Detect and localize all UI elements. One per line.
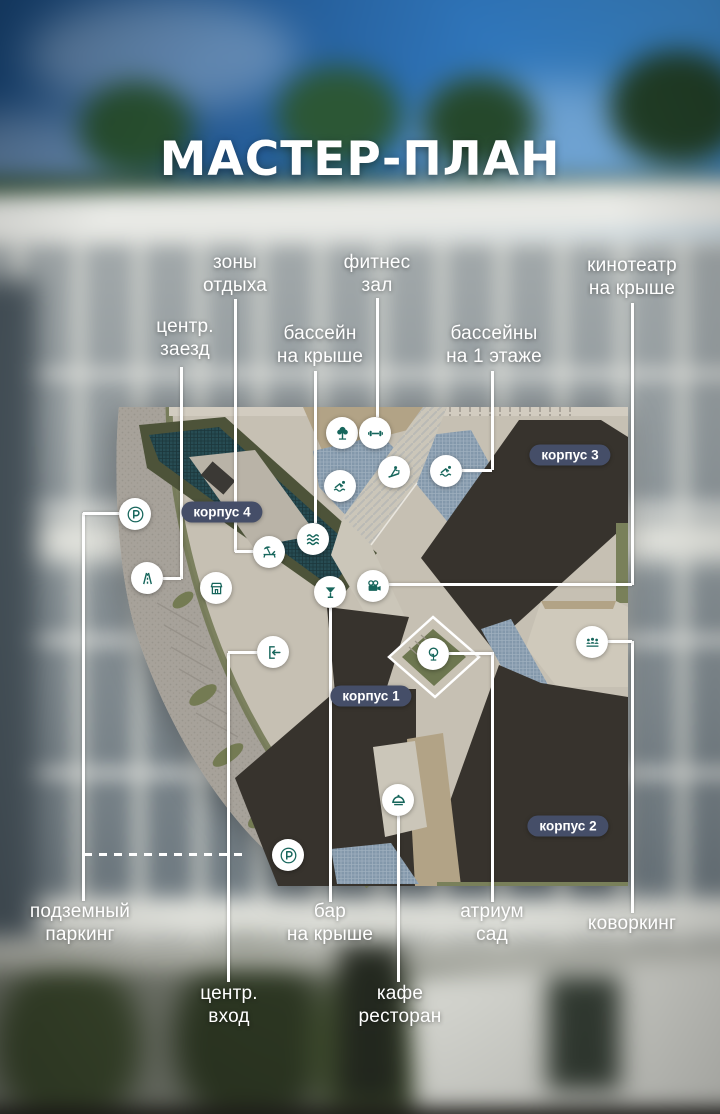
callout-line-entrance xyxy=(228,651,257,654)
shop-icon xyxy=(200,572,232,604)
callout-line-entrance xyxy=(227,653,230,982)
label-coworking: коворкинг xyxy=(588,912,676,935)
badge-korpus-3: корпус 3 xyxy=(529,445,610,466)
callout-line-parking xyxy=(82,513,85,901)
parking-icon xyxy=(272,839,304,871)
cinema-camera-icon xyxy=(357,570,389,602)
label-roofpool: бассейн на крыше xyxy=(277,322,363,368)
treadmill-icon xyxy=(378,456,410,488)
callout-line-cafe xyxy=(397,816,400,982)
lounge-icon xyxy=(253,536,285,568)
callout-line-atrium xyxy=(449,652,492,655)
callout-line-atrium xyxy=(491,652,494,902)
callout-line-bar xyxy=(329,608,332,902)
label-fitness: фитнес зал xyxy=(344,251,411,297)
underground-parking-dashed-line xyxy=(84,853,249,856)
callout-line-zones xyxy=(235,550,253,553)
callout-line-fitness xyxy=(376,298,379,417)
label-roof-bar: бар на крыше xyxy=(287,900,373,946)
page-title: МАСТЕР-ПЛАН xyxy=(0,132,720,187)
label-cafe-restaurant: кафе ресторан xyxy=(359,982,442,1028)
dumbbell-icon xyxy=(359,417,391,449)
badge-korpus-4: корпус 4 xyxy=(181,502,262,523)
cocktail-icon xyxy=(314,576,346,608)
callout-line-coworking xyxy=(608,640,632,643)
label-floorpools: бассейны на 1 этаже xyxy=(446,322,542,368)
badge-korpus-1: корпус 1 xyxy=(330,686,411,707)
atrium-tree-icon xyxy=(417,638,449,670)
callout-line-floorpools xyxy=(491,371,494,470)
road-icon xyxy=(131,562,163,594)
entrance-door-icon xyxy=(257,636,289,668)
callout-line-parking xyxy=(83,512,119,515)
restaurant-cloche-icon xyxy=(382,784,414,816)
masterplan-infographic: МАСТЕР-ПЛАН xyxy=(0,0,720,1114)
callout-line-cinema xyxy=(389,583,632,586)
callout-line-drive xyxy=(180,367,183,579)
badge-korpus-2: корпус 2 xyxy=(527,816,608,837)
label-zones: зоны отдыха xyxy=(203,251,267,297)
tree-icon xyxy=(326,417,358,449)
swimmer-icon xyxy=(324,470,356,502)
parking-icon xyxy=(119,498,151,530)
callout-line-coworking xyxy=(631,641,634,913)
label-underground-parking: подземный паркинг xyxy=(30,900,130,946)
callout-line-roofpool xyxy=(314,371,317,523)
coworking-people-icon xyxy=(576,626,608,658)
label-central-entrance: центр. вход xyxy=(200,982,257,1028)
label-drive: центр. заезд xyxy=(156,315,213,361)
swimmer-icon xyxy=(430,455,462,487)
label-cinema: кинотеатр на крыше xyxy=(587,254,677,300)
callout-line-floorpools xyxy=(462,469,492,472)
callout-line-cinema xyxy=(631,303,634,585)
label-atrium-garden: атриум сад xyxy=(460,900,524,946)
waves-icon xyxy=(297,523,329,555)
callout-line-drive xyxy=(163,577,181,580)
